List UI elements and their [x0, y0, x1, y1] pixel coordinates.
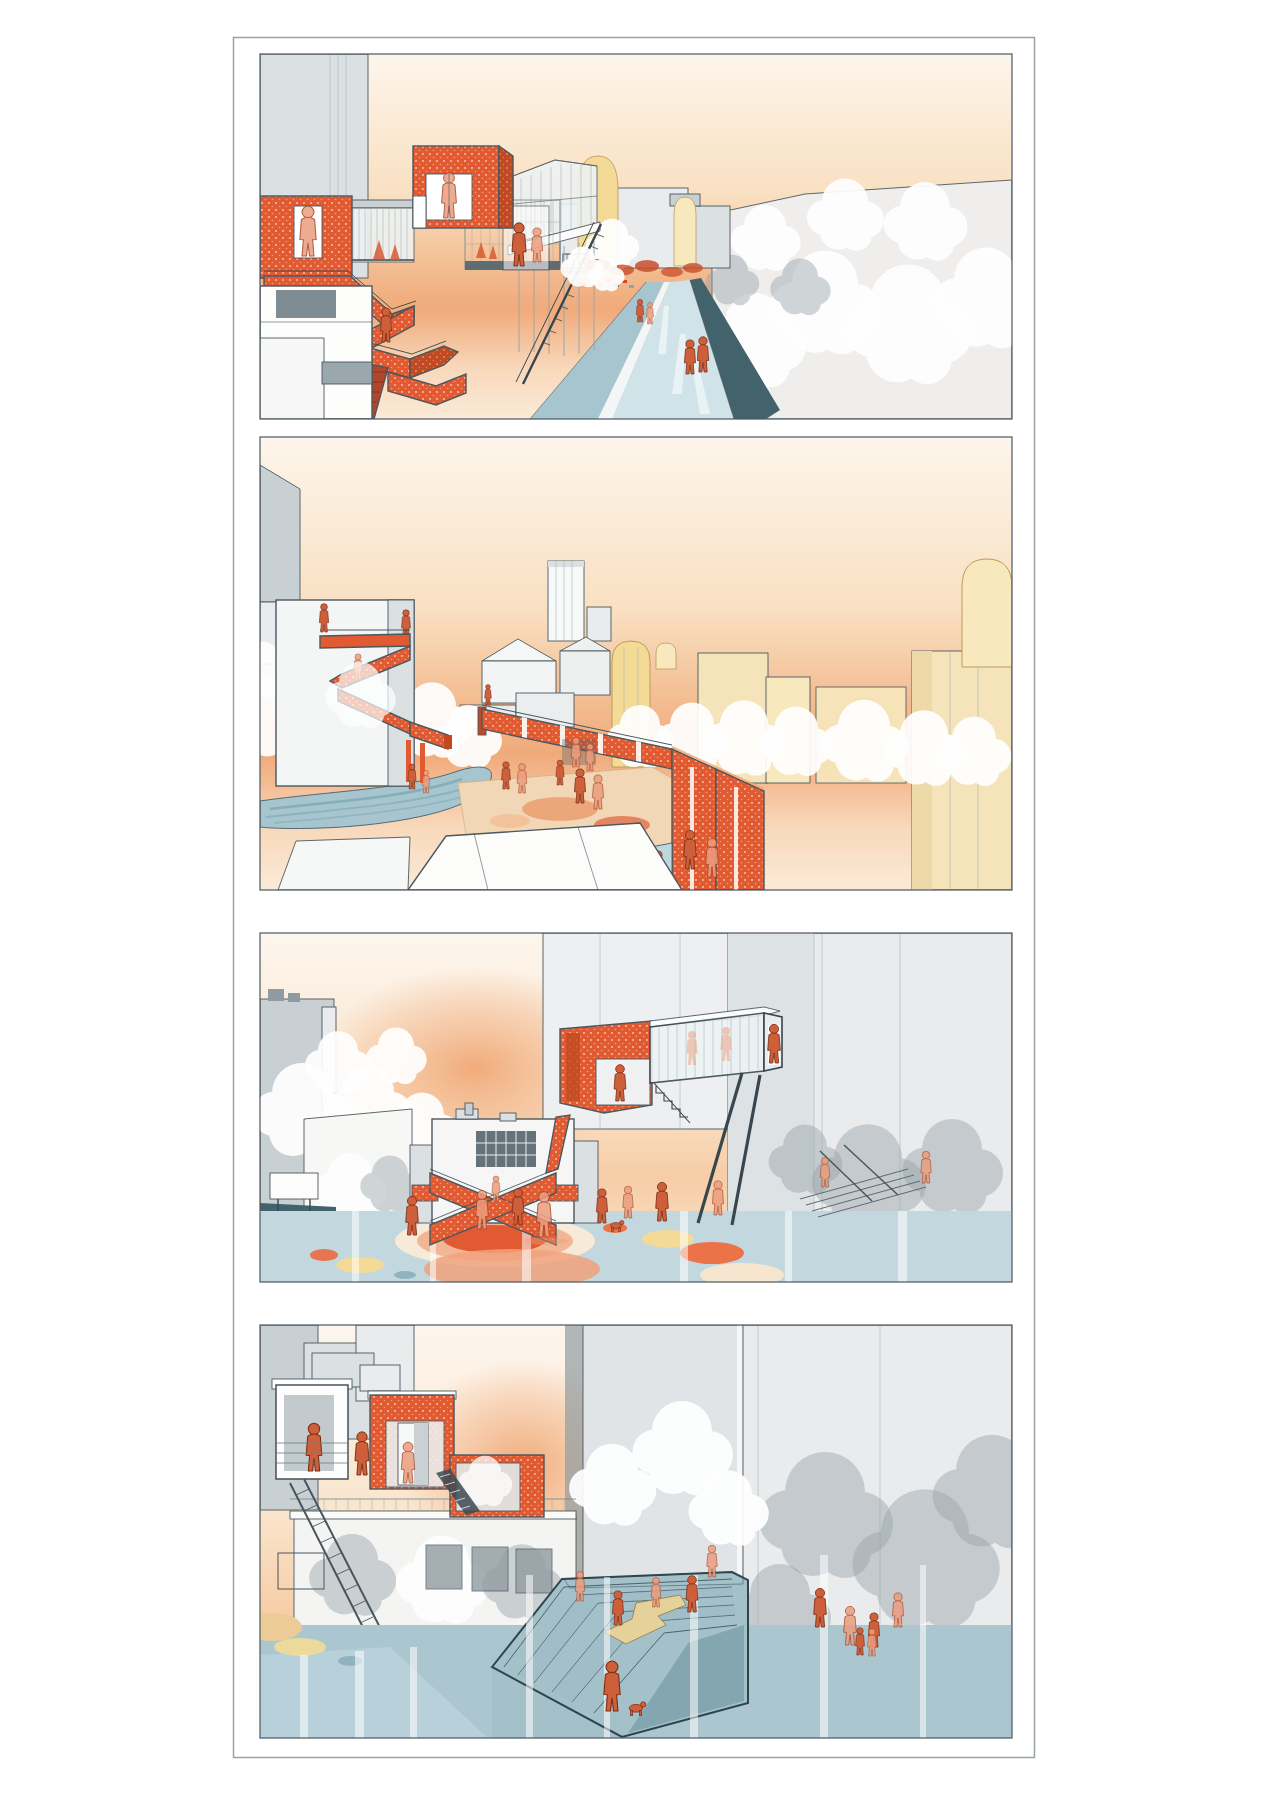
render-panel-2: [232, 437, 1012, 890]
orange-box-upper: [413, 146, 513, 228]
domed-tower-small: [674, 197, 696, 266]
terrace-podium: [290, 1499, 576, 1627]
render-panel-3: [253, 933, 1013, 1289]
render-panel-1: [260, 54, 1040, 419]
render-panel-4: [242, 1325, 1053, 1738]
sign-board: [270, 1173, 318, 1199]
board-artwork: [0, 0, 1269, 1797]
circle-plaza: [260, 1211, 1012, 1289]
domed-tower-large: [962, 559, 1012, 667]
foreground-buildings: [260, 286, 372, 419]
presentation-board: [0, 0, 1269, 1797]
